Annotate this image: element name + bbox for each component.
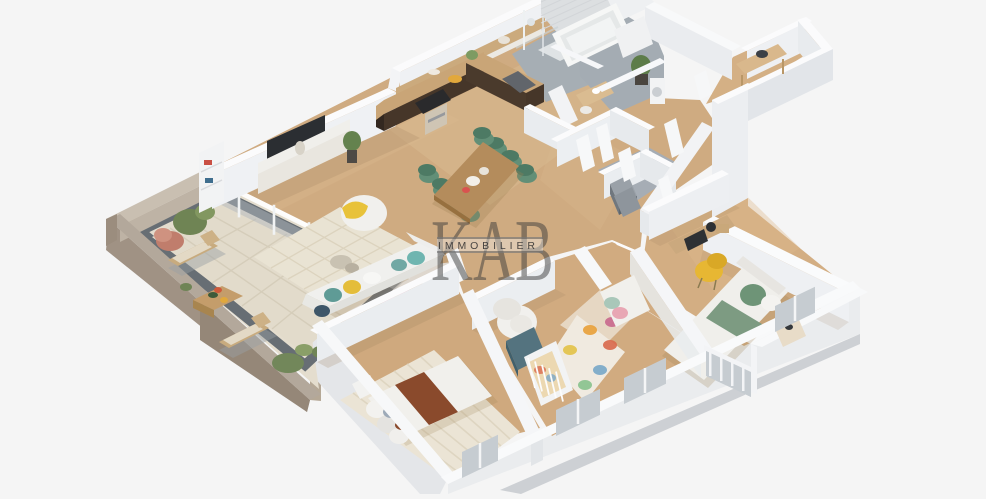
svg-text:IMMOBILIER: IMMOBILIER xyxy=(438,240,539,252)
